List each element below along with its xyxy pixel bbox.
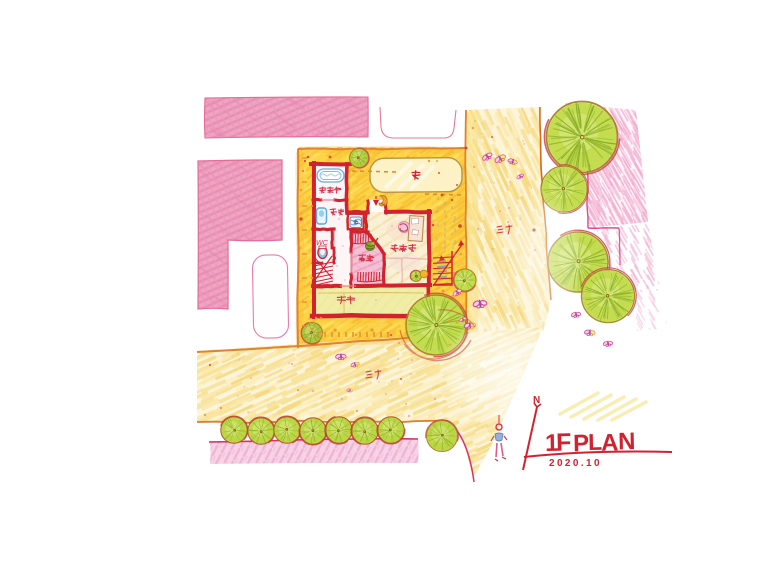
svg-text:2020.10: 2020.10 (549, 458, 602, 469)
svg-text:WC: WC (316, 238, 329, 247)
svg-text:N: N (533, 395, 540, 406)
